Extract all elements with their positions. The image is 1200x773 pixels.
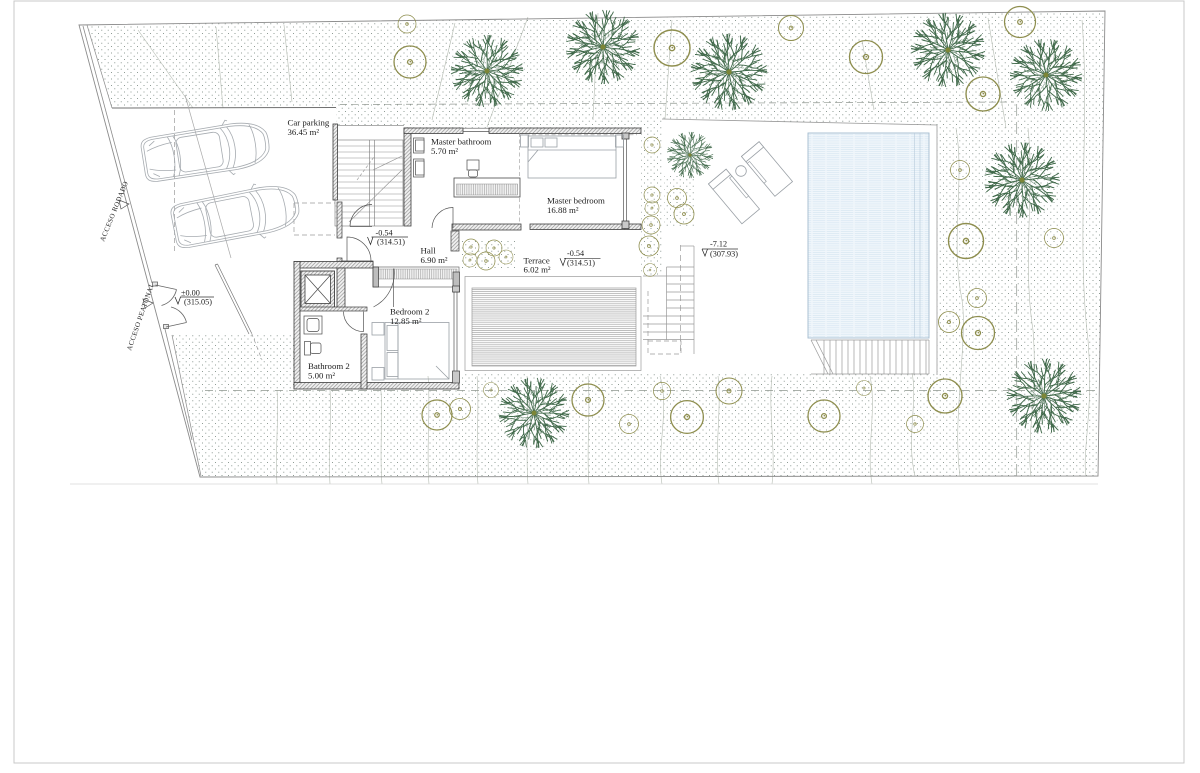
- svg-text:-7.12: -7.12: [710, 240, 727, 249]
- svg-text:Bedroom 2: Bedroom 2: [390, 307, 429, 317]
- svg-text:6.90 m²: 6.90 m²: [421, 255, 448, 265]
- svg-text:12.85 m²: 12.85 m²: [390, 316, 422, 326]
- svg-text:Hall: Hall: [421, 246, 437, 256]
- svg-text:5.70 m²: 5.70 m²: [431, 146, 458, 156]
- svg-text:(314.51): (314.51): [567, 259, 595, 268]
- svg-text:Car parking: Car parking: [288, 118, 330, 128]
- svg-text:Master bedroom: Master bedroom: [547, 196, 605, 206]
- svg-text:5.00 m²: 5.00 m²: [308, 371, 335, 381]
- svg-text:(315.05): (315.05): [184, 298, 212, 307]
- svg-text:±0.00: ±0.00: [181, 289, 200, 298]
- svg-text:-0.54: -0.54: [376, 229, 393, 238]
- svg-text:36.45 m²: 36.45 m²: [288, 127, 320, 137]
- svg-text:-0.54: -0.54: [567, 249, 584, 258]
- svg-text:(314.51): (314.51): [377, 238, 405, 247]
- svg-text:16.88 m²: 16.88 m²: [547, 205, 579, 215]
- svg-text:Bathroom 2: Bathroom 2: [308, 361, 350, 371]
- svg-text:(307.93): (307.93): [710, 250, 738, 259]
- svg-text:Master bathroom: Master bathroom: [431, 137, 491, 147]
- svg-text:6.02 m²: 6.02 m²: [524, 265, 551, 275]
